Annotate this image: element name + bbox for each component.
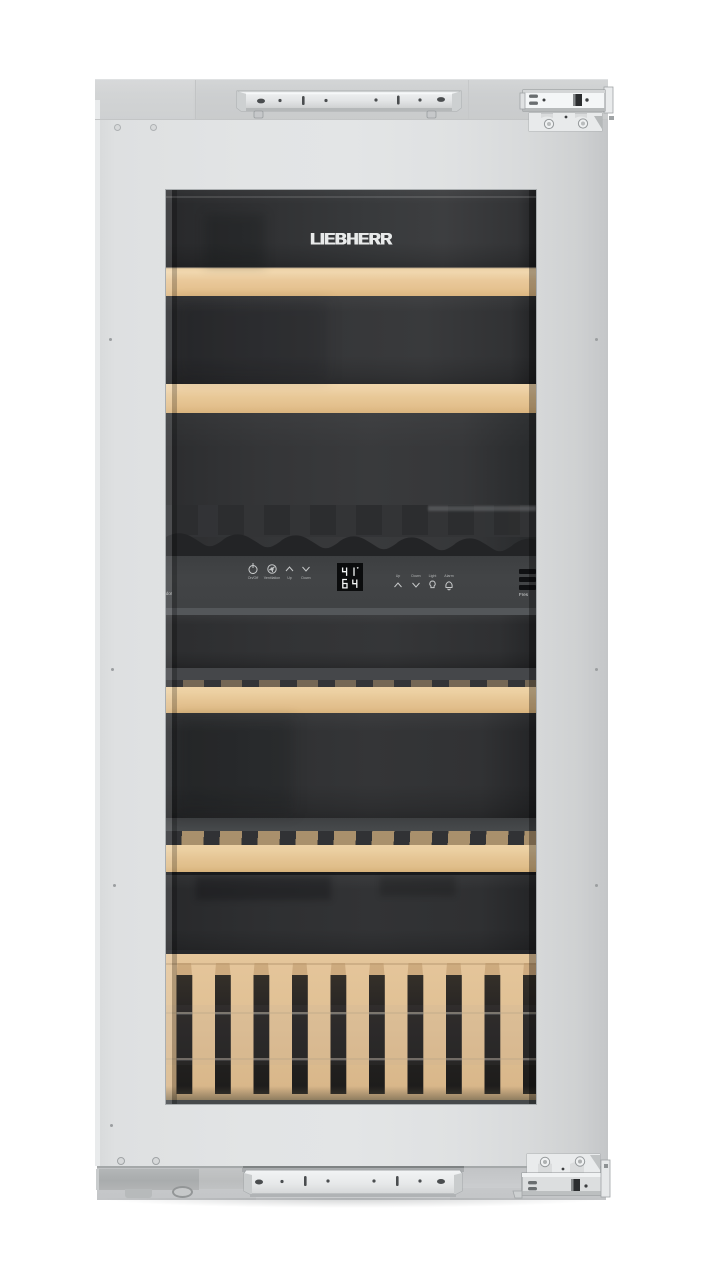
svg-text:Up: Up (396, 574, 401, 578)
svg-text:Light: Light (429, 574, 437, 578)
svg-text:Alarm: Alarm (444, 574, 453, 578)
svg-text:On/Off: On/Off (248, 576, 259, 580)
svg-text:Up: Up (287, 576, 292, 580)
svg-text:Fres: Fres (519, 592, 529, 597)
svg-text:Down: Down (411, 574, 420, 578)
svg-text:Ventilation: Ventilation (264, 576, 281, 580)
svg-text:Down: Down (301, 576, 310, 580)
